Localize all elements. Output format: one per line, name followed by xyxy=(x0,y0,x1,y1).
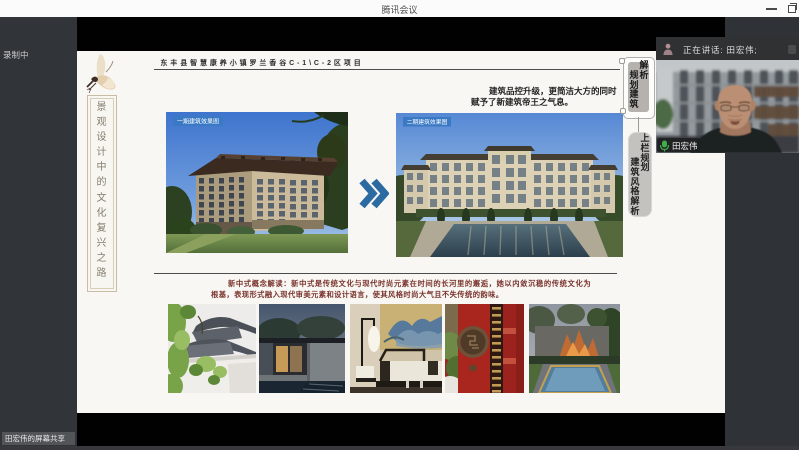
svg-text:二期建筑效果图: 二期建筑效果图 xyxy=(407,118,448,126)
svg-text:一期建筑效果图: 一期建筑效果图 xyxy=(177,118,219,126)
svg-text:田宏伟: 田宏伟 xyxy=(672,141,698,151)
